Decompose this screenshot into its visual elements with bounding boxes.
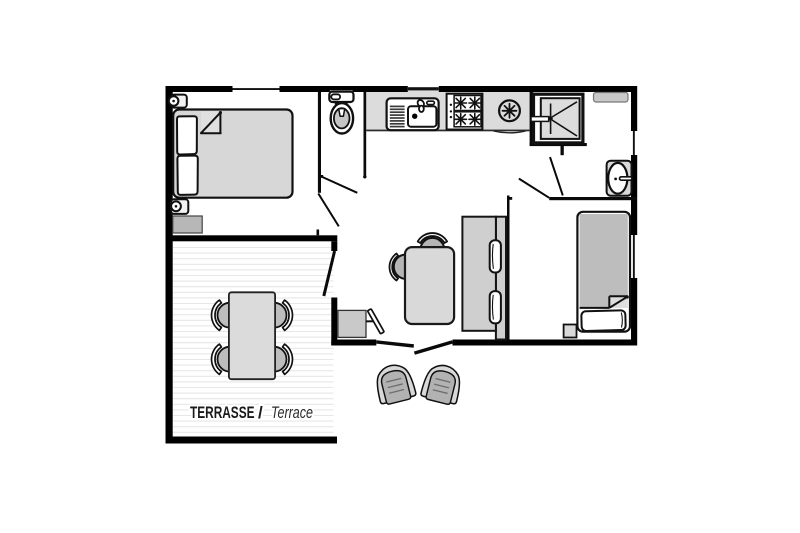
svg-text:/: / (258, 403, 263, 422)
svg-text:TERRASSE: TERRASSE (190, 403, 255, 422)
svg-text:Terrace: Terrace (271, 403, 313, 422)
